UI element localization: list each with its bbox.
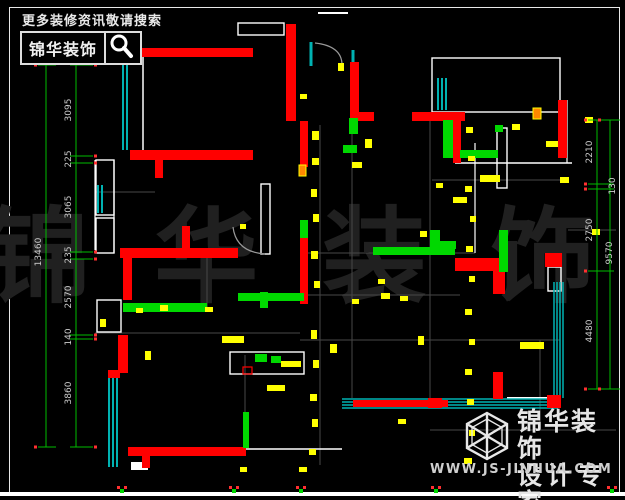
wall-segment (120, 248, 238, 258)
survey-dot (303, 486, 306, 489)
door-swing-arc (315, 43, 342, 65)
electrical-mark (145, 351, 151, 360)
pipe-run (238, 293, 304, 301)
electrical-mark (466, 127, 473, 133)
pipe-run (260, 292, 268, 308)
tick-dot (94, 338, 97, 341)
fixture-outline (261, 184, 270, 254)
fixture-outline (432, 58, 560, 112)
electrical-mark (267, 385, 285, 391)
dimension-value: 2570 (64, 285, 74, 308)
pipe-run (430, 241, 456, 249)
dimension-value: 2750 (585, 218, 595, 241)
electrical-mark (453, 197, 467, 203)
electrical-mark (381, 293, 390, 299)
wall-segment (493, 372, 503, 399)
pipe-run (349, 118, 358, 134)
dimension-value: 235 (64, 246, 74, 263)
electrical-mark (398, 419, 406, 424)
survey-tick (434, 489, 438, 493)
wall-segment (558, 100, 567, 158)
electrical-mark (352, 162, 362, 168)
magnifier-icon (106, 33, 136, 59)
electrical-mark (222, 336, 244, 343)
electrical-mark (311, 189, 317, 197)
wall-segment (428, 398, 442, 408)
survey-dot (229, 486, 232, 489)
electrical-mark (314, 281, 320, 288)
tick-dot (94, 251, 97, 254)
dimension-value: 140 (64, 328, 74, 345)
wall-segment (182, 226, 190, 248)
electrical-mark (330, 344, 337, 353)
electrical-mark (338, 63, 344, 71)
electrical-mark (546, 141, 558, 147)
pipe-run (271, 356, 281, 363)
dimension-value: 130 (608, 177, 618, 194)
survey-tick (120, 489, 124, 493)
electrical-mark (136, 308, 143, 313)
logo-text: 锦华装饰 设计专家 (517, 408, 620, 500)
fixture-outline (97, 300, 121, 332)
electrical-mark (311, 251, 318, 259)
electrical-mark (436, 183, 443, 188)
electrical-mark (312, 131, 319, 140)
survey-dot (296, 486, 299, 489)
wall-segment (545, 253, 562, 267)
tick-dot (598, 119, 601, 122)
survey-dot (236, 486, 239, 489)
wall-segment (412, 112, 465, 121)
electrical-mark (400, 296, 408, 301)
electrical-mark (420, 231, 427, 237)
electrical-mark (281, 361, 301, 367)
tick-dot (94, 446, 97, 449)
survey-dot (124, 486, 127, 489)
tick-dot (584, 188, 587, 191)
electrical-mark (468, 156, 475, 161)
fixture-outline (238, 23, 284, 35)
fixture-outline (96, 218, 114, 253)
survey-dot (431, 486, 434, 489)
electrical-mark (313, 214, 319, 222)
electrical-mark (512, 124, 520, 130)
wall-segment (130, 150, 253, 160)
wall-segment (300, 121, 308, 167)
wall-segment (493, 271, 505, 294)
pipe-run (460, 150, 498, 158)
electrical-mark (465, 309, 472, 315)
electrical-mark (300, 94, 307, 99)
survey-tick (232, 489, 236, 493)
electrical-mark (160, 305, 168, 311)
tick-dot (94, 162, 97, 165)
wall-segment (118, 335, 128, 373)
logo-url: WWW.JS-JINHUA.COM (430, 462, 612, 477)
electrical-mark (560, 177, 569, 183)
logo: 锦华装饰 设计专家 (455, 402, 620, 464)
tick-dot (94, 334, 97, 337)
electrical-mark (365, 139, 372, 148)
survey-dot (117, 486, 120, 489)
pipe-run (255, 354, 267, 362)
survey-tick (299, 489, 303, 493)
electrical-mark (240, 467, 247, 472)
electrical-mark (466, 246, 473, 252)
dimension-value: 3860 (64, 381, 74, 404)
electrical-mark (352, 299, 359, 304)
tick-dot (584, 270, 587, 273)
search-hint-text: 更多装修资讯敬请搜索 (22, 10, 162, 29)
wall-marker (243, 367, 252, 374)
dimension-value: 3095 (64, 99, 74, 122)
pipe-run (443, 120, 453, 158)
pipe-run (300, 220, 308, 238)
tick-dot (598, 388, 601, 391)
service-marker (299, 165, 306, 176)
electrical-mark (465, 369, 472, 375)
brand-name: 锦华装饰 (22, 33, 104, 63)
pipe-run (243, 412, 249, 448)
cad-floorplan-page: 锦 华 装 饰 30952253065235257014038601346022… (0, 0, 625, 500)
electrical-mark (378, 279, 385, 284)
electrical-mark (480, 175, 500, 182)
tick-dot (584, 119, 587, 122)
electrical-mark (520, 342, 544, 349)
electrical-mark (310, 394, 317, 401)
electrical-mark (312, 158, 319, 165)
tick-dot (584, 388, 587, 391)
tick-dot (94, 155, 97, 158)
electrical-mark (240, 224, 246, 229)
wall-segment (455, 258, 502, 271)
wall-segment (453, 121, 461, 163)
wall-segment (142, 456, 150, 468)
dimension-value: 4480 (585, 319, 595, 342)
tick-dot (34, 446, 37, 449)
brand-search-box[interactable]: 锦华装饰 (20, 31, 142, 65)
survey-dot (438, 486, 441, 489)
electrical-mark (469, 276, 475, 282)
electrical-mark (313, 360, 319, 368)
wall-segment (135, 48, 253, 57)
pipe-run (499, 230, 508, 272)
search-icon[interactable] (104, 33, 140, 63)
cube-hexagon-icon (463, 410, 511, 462)
electrical-mark (465, 186, 472, 192)
wall-segment (128, 447, 246, 456)
electrical-mark (418, 336, 424, 345)
tick-dot (94, 258, 97, 261)
pipe-run (343, 145, 357, 153)
wall-segment (123, 258, 132, 300)
electrical-mark (311, 330, 317, 339)
electrical-mark (312, 419, 318, 427)
dimension-total: 9570 (605, 241, 615, 264)
electrical-mark (309, 449, 316, 455)
electrical-mark (469, 339, 475, 345)
wall-segment (155, 160, 163, 178)
electrical-mark (100, 319, 106, 327)
electrical-mark (299, 467, 307, 472)
wall-segment (108, 370, 120, 378)
dimension-value: 3065 (64, 196, 74, 219)
dimension-value: 2210 (585, 140, 595, 163)
electrical-mark (205, 307, 213, 312)
wall-segment (286, 24, 296, 121)
pipe-run (495, 125, 503, 132)
tick-dot (584, 183, 587, 186)
dimension-value: 225 (64, 150, 74, 167)
logo-brand: 锦华装饰 (517, 408, 620, 462)
dimension-total: 13460 (34, 237, 44, 266)
electrical-mark (470, 216, 476, 222)
service-marker (533, 108, 541, 119)
